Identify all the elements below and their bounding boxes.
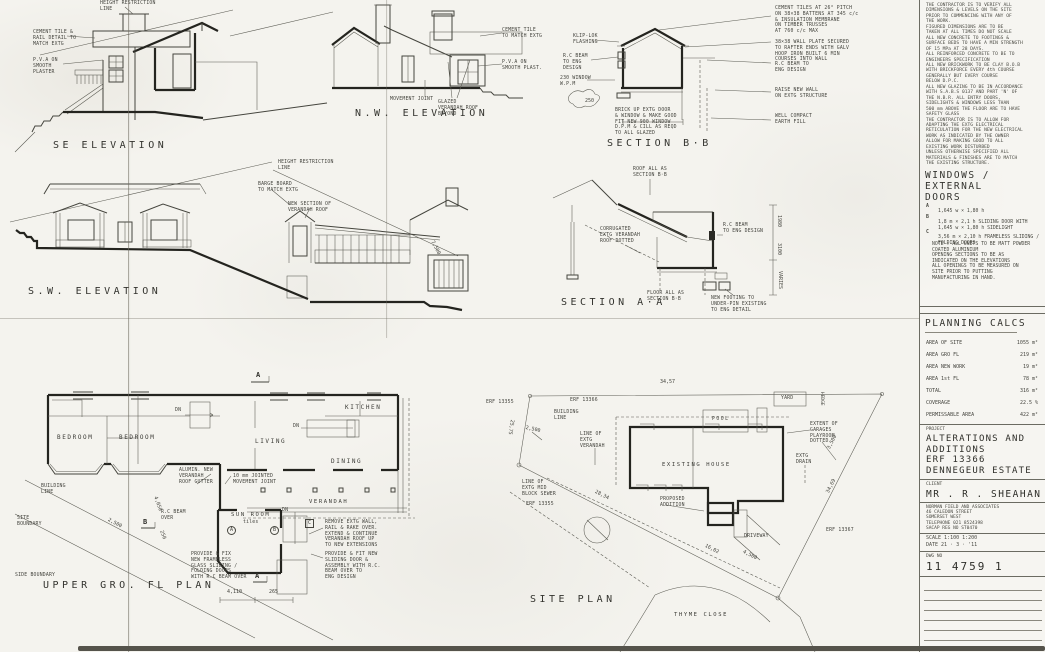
calc-label: AREA GRO FL bbox=[926, 352, 959, 358]
building-line-label: BUILDING LINE bbox=[554, 410, 579, 422]
calc-label: AREA 1st FL bbox=[926, 376, 959, 382]
architect-info: NORMAN FIELD AND ASSOCIATES 46 CALEDON S… bbox=[926, 505, 999, 531]
room-verandah: VERANDAH bbox=[309, 499, 348, 506]
windows-note: NOTE : ALL UNITS TO BE MATT POWDER COATE… bbox=[926, 242, 1043, 281]
project-label: PROJECT bbox=[926, 427, 945, 432]
pool-label: POOL bbox=[712, 417, 730, 423]
hedge-label: HEDGE bbox=[819, 392, 824, 406]
movement-joint-note: MOVEMENT JOINT bbox=[390, 97, 433, 103]
flashing-note: KLIP-LOK FLASHING bbox=[573, 34, 598, 46]
calc-value: 19 m² bbox=[1023, 364, 1038, 370]
compact-fill-note: WELL COMPACT EARTH FILL bbox=[775, 114, 812, 126]
ground-level-dim: 250 bbox=[585, 99, 594, 104]
room-kitchen: KITCHEN bbox=[345, 404, 382, 411]
calc-value: 78 m² bbox=[1023, 376, 1038, 382]
window-note: 230 WINDOW W.P.M bbox=[560, 76, 591, 88]
nw-elevation-label: N.W. ELEVATION bbox=[355, 108, 488, 120]
erf-13367-label: ERF 13367 bbox=[826, 528, 854, 534]
raise-wall-note: RAISE NEW WALL ON EXTG STRUCTURE bbox=[775, 88, 828, 100]
site-plan-label: SITE PLAN bbox=[530, 594, 616, 606]
wall-plate-note: 38×38 WALL PLATE SECURED TO RAFTER ENDS … bbox=[775, 40, 849, 63]
dim-3457: 34,57 bbox=[660, 380, 675, 385]
footing-note: NEW FOOTING TO UNDER-PIN EXISTING TO ENG… bbox=[711, 296, 767, 313]
room-living: LIVING bbox=[255, 438, 286, 445]
se-elevation-linework bbox=[5, 0, 335, 160]
calc-value: 316 m² bbox=[1020, 388, 1038, 394]
existing-house-label: EXISTING HOUSE bbox=[662, 462, 731, 469]
site-plan-linework bbox=[480, 370, 920, 652]
sliding-door-note: PROVIDE & FIT NEW SLIDING DOOR & ASSEMBL… bbox=[325, 552, 381, 581]
erf-13355-label-bottom: ERF 13355 bbox=[526, 502, 554, 508]
section-aa-label: SECTION A·A bbox=[561, 297, 666, 309]
project-name: ALTERATIONS AND ADDITIONS ERF 13366 DENN… bbox=[926, 434, 1032, 476]
section-bb-label: SECTION B·B bbox=[607, 138, 712, 150]
sunroom-tiles-note: tiles bbox=[243, 520, 258, 526]
remove-wall-note: REMOVE EXTG WALL, RAIL & RAKE OVER. EXTE… bbox=[325, 520, 378, 549]
section-marker-a-top: A bbox=[256, 371, 260, 379]
site-boundary-note: SITE BOUNDARY bbox=[17, 516, 42, 528]
street-name-label: THYME CLOSE bbox=[674, 612, 728, 619]
erf-13355-label-top: ERF 13355 bbox=[486, 400, 514, 406]
cement-tile-note: CEMENT TILE & RAIL DETAIL TO MATCH EXTG bbox=[33, 30, 76, 47]
stair-dn-label-3: DN bbox=[282, 508, 288, 514]
proposed-addition-label: PROPOSED ADDITION bbox=[660, 497, 685, 509]
erf-13366-label: ERF 13366 bbox=[570, 398, 598, 404]
window-item-c-key: C bbox=[926, 230, 929, 236]
brick-up-note: BRICK UP EXTG DOOR & WINDOW & MAKE GOOD … bbox=[615, 108, 677, 137]
driveway-label: DRIVEWAY bbox=[744, 534, 769, 540]
cement-tile-note: CEMENT TILE TO MATCH EXTG bbox=[502, 28, 542, 40]
rc-beam-note: R.C BEAM TO ENG DESIGN bbox=[563, 54, 588, 71]
dim-1980: 1980 bbox=[776, 215, 781, 227]
window-item-b-key: B bbox=[926, 215, 929, 221]
windows-note-text: NOTE : ALL UNITS TO BE MATT POWDER COATE… bbox=[932, 242, 1043, 281]
client-label: CLIENT bbox=[926, 482, 942, 487]
room-bedroom-2: BEDROOM bbox=[119, 434, 156, 441]
scale-row: SCALE 1:100 1:200 bbox=[926, 536, 977, 541]
building-line-note: BUILDING LINE bbox=[41, 484, 66, 496]
stair-dn-label-2: DN bbox=[293, 424, 299, 430]
sw-elevation-drawing: HEIGHT RESTRICTION LINE BARGE BOARD TO M… bbox=[10, 160, 470, 310]
general-notes: THE CONTRACTOR IS TO VERIFY ALL DIMENSIO… bbox=[926, 3, 1044, 167]
planning-calcs-title: PLANNING CALCS bbox=[925, 318, 1026, 329]
section-aa-drawing: ROOF ALL AS SECTION B·B CORRUGATED EXTG … bbox=[545, 165, 817, 315]
dwg-no-label: DWG NO bbox=[926, 554, 942, 559]
door-marker-c: C bbox=[305, 519, 314, 528]
section-marker-b: B bbox=[143, 518, 147, 526]
se-elevation-drawing: HEIGHT RESTRICTION LINE CEMENT TILE & RA… bbox=[5, 0, 335, 160]
sw-elevation-label: S.W. ELEVATION bbox=[28, 286, 161, 298]
se-elevation-label: SE ELEVATION bbox=[53, 140, 167, 152]
dim-2575: 25,75 bbox=[507, 419, 514, 435]
barge-board-note: BARGE BOARD TO MATCH EXTG bbox=[258, 182, 298, 194]
fold-crease-horizontal bbox=[0, 318, 919, 319]
calc-value: 22.5 % bbox=[1020, 400, 1038, 406]
dim-4110: 4,110 bbox=[227, 590, 242, 595]
dwg-number: 11 4759 1 bbox=[926, 560, 1004, 573]
plaster-note: P.V.A ON SMOOTH PLASTER bbox=[33, 58, 58, 75]
calc-label: PERMISSABLE AREA bbox=[926, 412, 974, 418]
room-dining: DINING bbox=[331, 458, 362, 465]
corrugated-roof-note: CORRUGATED EXTG VERANDAH ROOF DOTTED bbox=[600, 227, 640, 244]
upper-floor-plan-drawing: BEDROOM BEDROOM LIVING KITCHEN DINING VE… bbox=[15, 368, 437, 622]
calc-value: 219 m² bbox=[1020, 352, 1038, 358]
client-name: MR . R . SHEAHAN bbox=[926, 489, 1042, 500]
section-marker-a-bottom: A bbox=[255, 572, 259, 580]
drawing-sheet: HEIGHT RESTRICTION LINE CEMENT TILE & RA… bbox=[0, 0, 1045, 652]
movement-joint-note: 10 mm JOINTED MOVEMENT JOINT bbox=[233, 474, 276, 486]
door-marker-b: B bbox=[270, 526, 279, 535]
frameless-doors-note: PROVIDE & FIX NEW FRAMELESS GLASS SLIDIN… bbox=[191, 552, 247, 581]
drain-note: EXTG DRAIN bbox=[796, 454, 811, 466]
side-boundary-note: SIDE BOUNDARY bbox=[15, 573, 55, 579]
calc-value: 422 m² bbox=[1020, 412, 1038, 418]
rc-beam-note: R.C BEAM TO ENG DESIGN bbox=[723, 223, 763, 235]
scan-shadow-band bbox=[78, 646, 1045, 651]
dim-varies: VARIES bbox=[777, 271, 782, 289]
site-plan-drawing: ERF 13355 ERF 13366 ERF 13355 ERF 13367 … bbox=[480, 370, 920, 652]
rc-beam-note-2: R.C BEAM TO ENG DESIGN bbox=[775, 62, 809, 74]
room-sunroom: SUN ROOM bbox=[231, 512, 270, 519]
door-marker-a: A bbox=[227, 526, 236, 535]
room-bedroom-1: BEDROOM bbox=[57, 434, 94, 441]
verandah-gutter-note: ALUMIN. NEW VERANDAH ROOF GUTTER bbox=[179, 468, 213, 485]
roof-tiles-note: CEMENT TILES AT 26° PITCH ON 38×38 BATTE… bbox=[775, 6, 858, 35]
yard-label: YARD bbox=[781, 396, 793, 402]
calc-value: 1055 m² bbox=[1017, 340, 1038, 346]
new-verandah-section-note: NEW SECTION OF VERANDAH ROOF bbox=[288, 202, 331, 214]
nw-elevation-drawing: CEMENT TILE TO MATCH EXTG P.V.A ON SMOOT… bbox=[330, 0, 545, 125]
calc-label: AREA NEW WORK bbox=[926, 364, 965, 370]
dim-265: 265 bbox=[269, 590, 278, 595]
plaster-note: P.V.A ON SMOOTH PLAST. bbox=[502, 60, 542, 72]
calc-label: TOTAL bbox=[926, 388, 941, 394]
height-restriction-note: HEIGHT RESTRICTION LINE bbox=[278, 160, 334, 172]
roof-as-note: ROOF ALL AS SECTION B·B bbox=[633, 167, 667, 179]
verandah-line-note: LINE OF EXTG VERANDAH bbox=[580, 432, 605, 449]
date-row: DATE 21 · 3 · '11 bbox=[926, 543, 977, 548]
calc-label: AREA OF SITE bbox=[926, 340, 962, 346]
stair-dn-label-1: DN bbox=[175, 408, 181, 414]
fold-crease-left bbox=[128, 0, 129, 652]
fold-crease-middle bbox=[386, 0, 387, 338]
rc-beam-over-note: R.C BEAM OVER bbox=[161, 510, 186, 522]
dim-3100: 3100 bbox=[776, 243, 781, 255]
title-block: THE CONTRACTOR IS TO VERIFY ALL DIMENSIO… bbox=[919, 0, 1045, 652]
sewer-line-note: LINE OF EXTG MID BLOCK SEWER bbox=[522, 480, 556, 497]
calc-label: COVERAGE bbox=[926, 400, 950, 406]
section-bb-drawing: KLIP-LOK FLASHING R.C BEAM TO ENG DESIGN… bbox=[555, 0, 917, 162]
